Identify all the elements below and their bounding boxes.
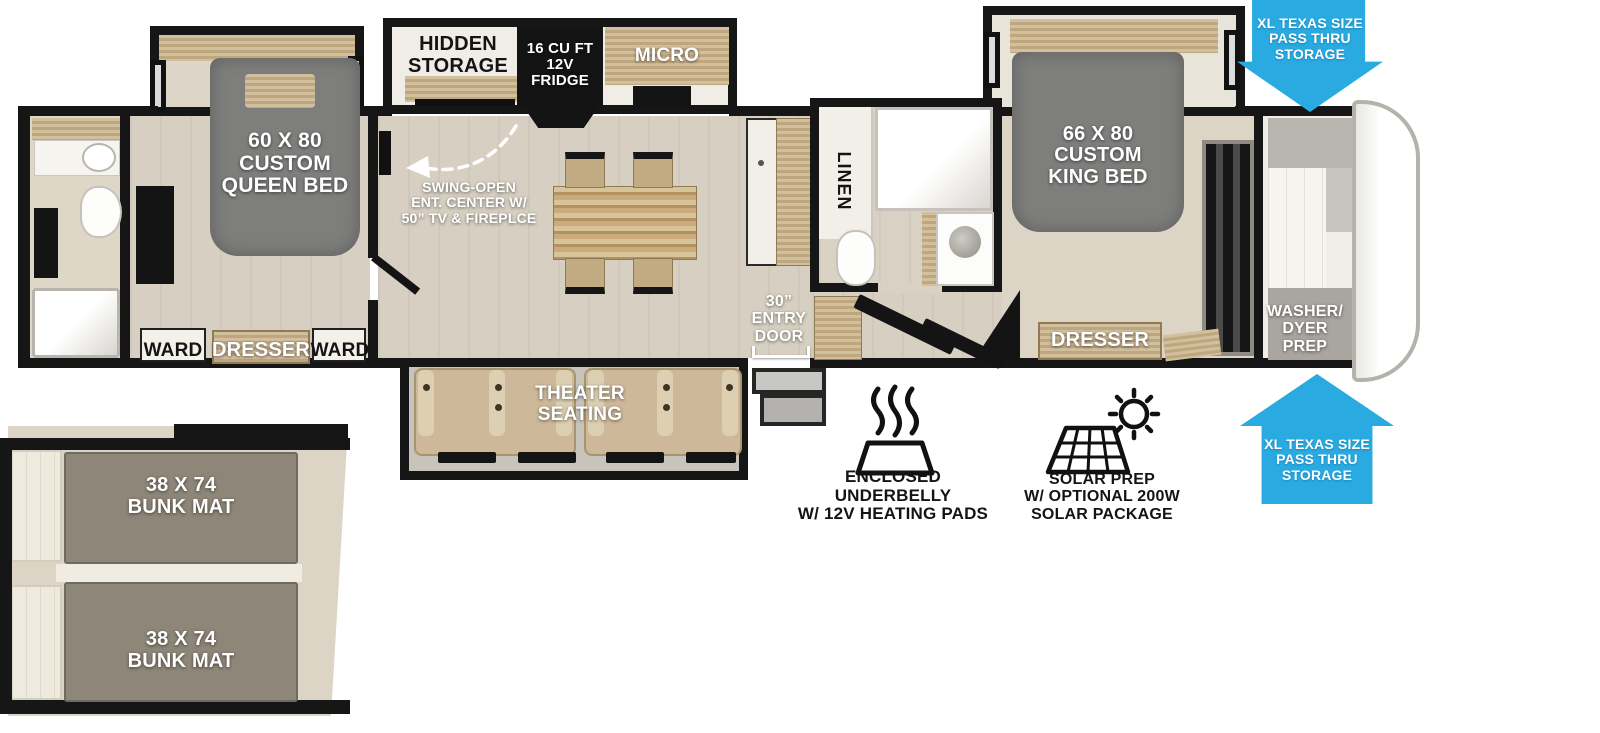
bunk-room-vent — [174, 424, 348, 438]
rear-bath-cabinet — [34, 208, 58, 278]
entry-wood-cabinet — [776, 118, 814, 266]
floorplan-canvas: HIDDEN STORAGE 16 CU FT 12V FRIDGE MICRO… — [0, 0, 1600, 733]
hidden-storage-label: HIDDEN STORAGE — [397, 34, 519, 78]
bunk-wardrobe-upper — [12, 450, 62, 562]
washer-dryer-prep-label: WASHER/ DYER PREP — [1264, 300, 1346, 358]
fridge-label: 16 CU FT 12V FRIDGE — [517, 32, 603, 98]
washer-side-cabinet — [922, 212, 936, 286]
closet-wardrobe — [1202, 140, 1254, 356]
queen-slide-window-left — [150, 60, 166, 112]
queen-bed-pillow — [245, 74, 315, 108]
rear-bath-counter — [32, 118, 120, 140]
swing-open-label: SWING-OPEN ENT. CENTER W/ 50” TV & FIREP… — [396, 178, 542, 228]
heating-pads-icon — [840, 385, 950, 477]
pantry-knob — [758, 160, 764, 166]
range — [633, 86, 691, 108]
entry-step — [752, 368, 826, 394]
rear-toilet — [80, 186, 122, 238]
king-slide-window-left — [984, 32, 1000, 88]
kitchen-island — [553, 186, 697, 260]
bunk-wardrobe-lower — [12, 585, 62, 700]
front-wardrobe — [1268, 168, 1326, 288]
dresser-front-label: DRESSER — [1036, 330, 1164, 352]
bath-bedroom-divider-wall — [120, 106, 130, 368]
pass-thru-top-label: XL TEXAS SIZE PASS THRU STORAGE — [1237, 6, 1383, 72]
ward-left-label: WARD — [138, 340, 208, 362]
bunk-mat-top-label: 38 X 74 BUNK MAT — [106, 476, 256, 518]
enclosed-underbelly-label: ENCLOSED UNDERBELLY W/ 12V HEATING PADS — [788, 476, 998, 516]
mid-shower — [875, 107, 993, 211]
living-wall-window — [379, 131, 391, 175]
swing-arrow-icon — [398, 118, 522, 184]
linen-label: LINEN — [832, 131, 854, 231]
entry-door-label: 30” ENTRY DOOR — [744, 292, 814, 346]
floor-register — [518, 452, 576, 463]
floor-register — [606, 452, 664, 463]
tv-bar — [415, 99, 515, 106]
mid-toilet — [836, 230, 876, 286]
entry-step — [760, 394, 826, 426]
ward-right-label: WARD — [304, 340, 376, 362]
solar-prep-label: SOLAR PREP W/ OPTIONAL 200W SOLAR PACKAG… — [1000, 470, 1204, 524]
dresser-rear-label: DRESSER — [210, 340, 312, 362]
queen-room-tv — [136, 186, 174, 284]
island-chair — [633, 152, 673, 188]
island-chair — [565, 152, 605, 188]
rear-shower — [32, 288, 120, 358]
washer-door — [949, 226, 981, 258]
floor-register — [686, 452, 736, 463]
bathroom-sink — [82, 143, 116, 172]
entry-door-bracket — [752, 346, 810, 358]
front-overhead-cabinet — [1268, 118, 1358, 168]
bunk-mat-bottom-label: 38 X 74 BUNK MAT — [106, 630, 256, 672]
solar-panel-icon — [1040, 388, 1164, 476]
pass-thru-bottom-label: XL TEXAS SIZE PASS THRU STORAGE — [1240, 424, 1394, 496]
pantry-cabinet — [746, 118, 776, 266]
bunk-shelf — [56, 564, 302, 582]
island-chair — [565, 258, 605, 294]
front-cap — [1352, 100, 1420, 382]
micro-label: MICRO — [605, 44, 729, 68]
theater-seating-label: THEATER SEATING — [505, 384, 655, 426]
bedroom-living-wall-upper — [368, 106, 378, 258]
queen-bed-label: 60 X 80 CUSTOM QUEEN BED — [205, 130, 365, 198]
king-bed-label: 66 X 80 CUSTOM KING BED — [1018, 124, 1178, 188]
island-chair — [633, 258, 673, 294]
floor-register — [438, 452, 496, 463]
front-bedroom-right-wall — [1254, 106, 1263, 368]
